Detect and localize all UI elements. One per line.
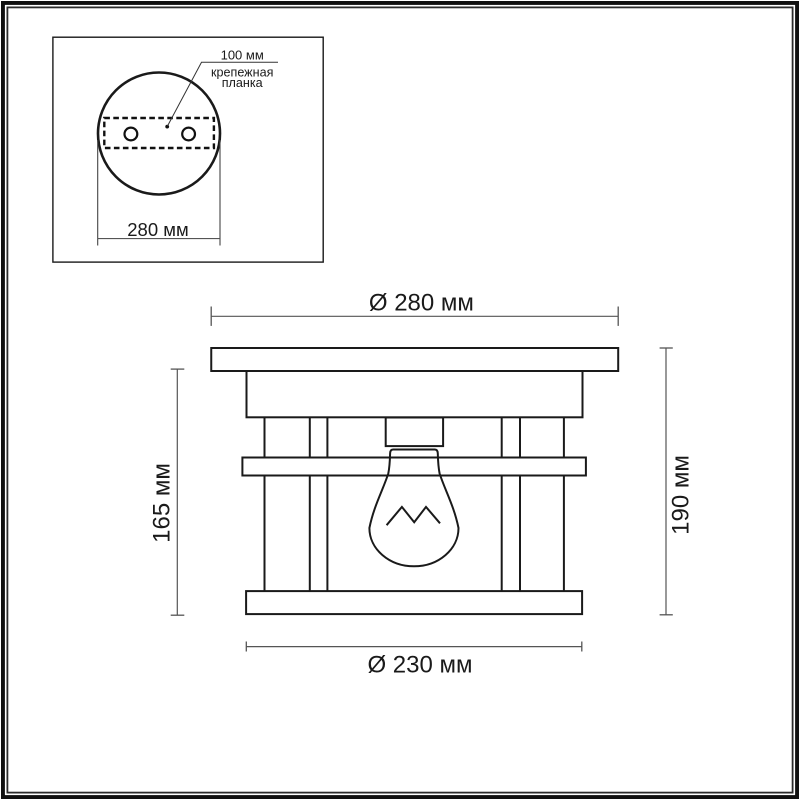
svg-text:190 мм: 190 мм	[667, 455, 694, 535]
svg-text:Ø 280 мм: Ø 280 мм	[369, 289, 474, 316]
svg-text:Ø 230 мм: Ø 230 мм	[367, 652, 472, 679]
svg-text:100 мм: 100 мм	[221, 47, 264, 62]
svg-text:280 мм: 280 мм	[127, 219, 188, 240]
svg-text:165 мм: 165 мм	[149, 463, 176, 543]
svg-text:планка: планка	[222, 76, 263, 90]
